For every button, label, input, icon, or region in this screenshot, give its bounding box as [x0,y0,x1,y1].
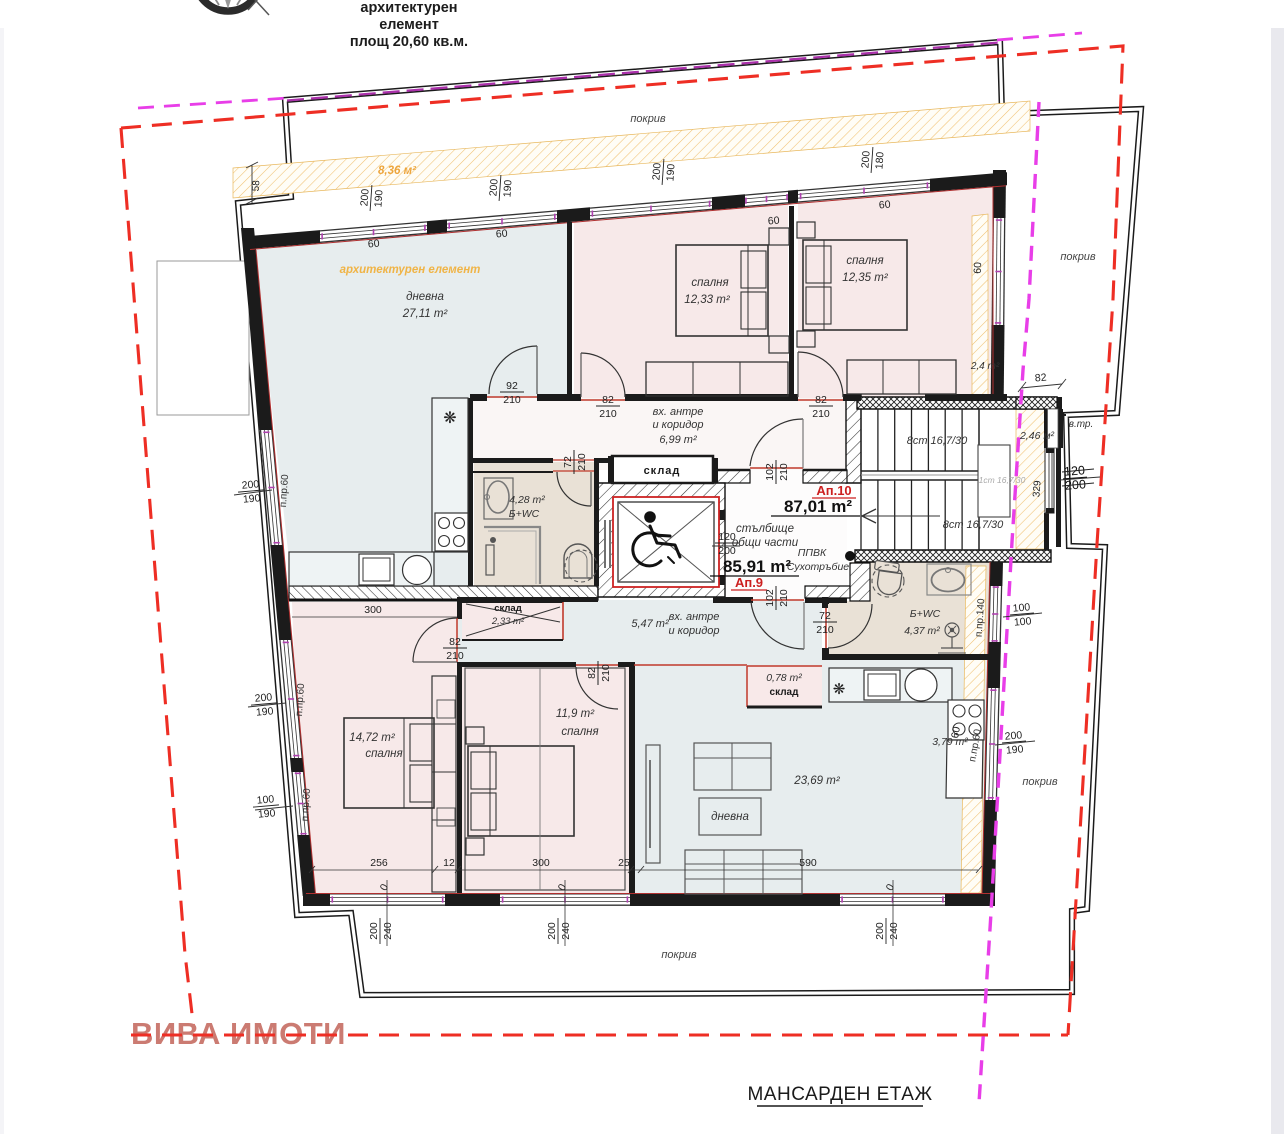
svg-text:дневна: дневна [406,291,444,303]
svg-text:п.пр.60: п.пр.60 [278,474,291,508]
svg-text:покрив: покрив [1060,251,1096,263]
svg-text:архитектурен елемент: архитектурен елемент [340,264,481,276]
svg-text:МАНСАРДЕН ЕТАЖ: МАНСАРДЕН ЕТАЖ [747,1084,932,1105]
svg-text:82: 82 [815,394,827,406]
svg-text:60: 60 [878,199,891,212]
svg-text:8,36 м²: 8,36 м² [378,165,417,177]
svg-text:Б+WC: Б+WC [910,608,941,620]
svg-text:240: 240 [888,922,900,940]
svg-text:200: 200 [718,545,736,557]
svg-text:2,46 м²: 2,46 м² [1019,430,1055,442]
svg-text:спалня: спалня [561,726,598,738]
svg-text:210: 210 [599,408,617,420]
svg-text:72: 72 [819,610,831,622]
svg-text:200: 200 [650,162,663,180]
svg-text:покрив: покрив [661,949,697,961]
svg-text:4,28 m²: 4,28 m² [509,494,545,506]
svg-text:200: 200 [859,150,872,168]
svg-text:2,4 m²: 2,4 m² [970,361,1000,372]
svg-text:72: 72 [562,456,574,468]
svg-text:210: 210 [778,463,790,481]
svg-text:200: 200 [874,922,886,940]
svg-text:ППВК: ППВК [798,547,827,559]
svg-text:210: 210 [576,453,588,471]
svg-text:82: 82 [1034,372,1047,385]
svg-text:85,91 m²: 85,91 m² [723,557,791,576]
svg-text:200: 200 [254,691,273,704]
svg-text:вх. антре: вх. антре [669,611,720,623]
svg-text:100: 100 [1013,615,1032,628]
svg-text:58: 58 [251,179,263,191]
svg-text:склад: склад [770,687,800,698]
svg-text:Б+WC: Б+WC [509,508,540,520]
svg-text:Ап.10: Ап.10 [816,483,851,498]
svg-text:0,78 m²: 0,78 m² [766,672,802,684]
svg-text:210: 210 [446,650,464,662]
svg-text:12: 12 [443,857,455,869]
svg-text:200: 200 [487,178,500,196]
svg-text:82: 82 [586,667,598,679]
svg-text:102: 102 [764,589,776,607]
svg-text:87,01 m²: 87,01 m² [784,497,852,516]
svg-text:12,35 m²: 12,35 m² [842,272,889,284]
svg-text:60: 60 [367,238,380,251]
svg-text:92: 92 [506,380,518,392]
svg-text:190: 190 [1005,743,1024,756]
svg-text:210: 210 [778,589,790,607]
svg-text:п.пр.60: п.пр.60 [300,788,313,822]
svg-text:256: 256 [370,857,388,869]
svg-text:60: 60 [949,726,963,740]
svg-text:300: 300 [532,857,550,869]
svg-text:и коридор: и коридор [652,419,703,431]
svg-text:и коридор: и коридор [668,625,719,637]
svg-text:190: 190 [664,163,677,181]
svg-text:210: 210 [600,664,612,682]
svg-text:склад: склад [644,465,681,477]
svg-text:23,69 m²: 23,69 m² [793,775,841,787]
svg-text:300: 300 [364,604,382,616]
svg-text:60: 60 [767,215,780,228]
svg-text:190: 190 [257,807,276,820]
svg-text:210: 210 [816,624,834,636]
svg-text:190: 190 [255,705,274,718]
svg-text:27,11 m²: 27,11 m² [402,308,449,320]
svg-text:6,99 m²: 6,99 m² [659,434,697,446]
svg-text:180: 180 [873,151,886,169]
svg-text:100: 100 [256,793,275,806]
svg-text:8ст 16,7/30: 8ст 16,7/30 [907,435,968,447]
svg-text:60: 60 [972,262,984,274]
svg-text:200: 200 [358,188,371,206]
svg-text:❋: ❋ [443,410,456,427]
svg-text:240: 240 [382,922,394,940]
svg-text:площ 20,60 кв.м.: площ 20,60 кв.м. [350,34,468,50]
svg-text:210: 210 [503,394,521,406]
svg-text:14,72 m²: 14,72 m² [349,732,396,744]
svg-text:82: 82 [602,394,614,406]
svg-text:240: 240 [560,922,572,940]
svg-text:2,33 m²: 2,33 m² [491,616,525,627]
svg-text:архитектурен: архитектурен [360,0,457,16]
svg-text:120: 120 [718,531,736,543]
svg-text:стълбище: стълбище [736,523,794,535]
svg-text:25: 25 [618,857,630,869]
svg-text:5,47 m²: 5,47 m² [631,618,669,630]
svg-text:спалня: спалня [691,277,728,289]
svg-text:190: 190 [242,492,261,505]
svg-text:82: 82 [449,636,461,648]
svg-text:329: 329 [1031,480,1043,498]
svg-text:1ст 16,7/30: 1ст 16,7/30 [979,475,1026,485]
svg-text:200: 200 [1004,729,1023,742]
svg-text:елемент: елемент [379,17,439,33]
svg-text:покрив: покрив [630,113,666,125]
svg-text:210: 210 [812,408,830,420]
svg-text:102: 102 [764,463,776,481]
svg-text:вх. антре: вх. антре [653,406,704,418]
svg-text:общи части: общи части [732,537,799,549]
svg-text:100: 100 [1012,601,1031,614]
svg-text:200: 200 [241,478,260,491]
svg-text:Ап.9: Ап.9 [735,575,763,590]
svg-text:200: 200 [368,922,380,940]
svg-text:Сухотръбие: Сухотръбие [787,561,849,573]
svg-text:п.пр.60: п.пр.60 [294,683,307,717]
svg-text:спалня: спалня [846,255,883,267]
svg-text:склад: склад [494,603,522,614]
svg-text:60: 60 [495,228,508,241]
svg-text:190: 190 [501,179,514,197]
svg-text:590: 590 [799,857,817,869]
svg-text:дневна: дневна [711,811,749,823]
svg-text:190: 190 [372,189,385,207]
svg-text:4,37 m²: 4,37 m² [904,625,940,637]
svg-text:200: 200 [546,922,558,940]
svg-text:12,33 m²: 12,33 m² [684,294,731,306]
svg-text:❋: ❋ [833,681,846,698]
svg-text:11,9 m²: 11,9 m² [556,708,595,720]
svg-text:спалня: спалня [365,748,402,760]
svg-text:8ст 16,7/30: 8ст 16,7/30 [943,519,1004,531]
svg-text:в.тр.: в.тр. [1069,419,1094,430]
svg-text:покрив: покрив [1022,776,1058,788]
